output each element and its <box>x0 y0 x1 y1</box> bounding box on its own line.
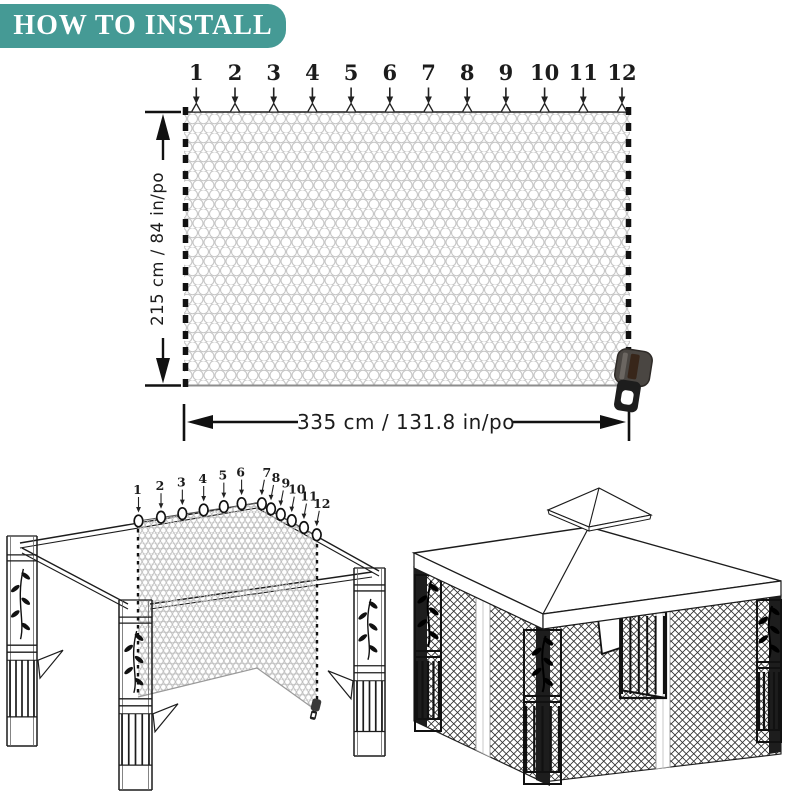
clip-number: 3 <box>266 60 281 85</box>
clip-numbers-row: 123456789101112 <box>189 60 637 112</box>
gazebo-corner-post <box>7 536 63 746</box>
net-ring-clip <box>287 515 296 527</box>
net-ring-clip <box>300 522 309 534</box>
arrow-right-icon <box>600 415 626 429</box>
ring-number: 8 <box>272 470 281 485</box>
assembled-gazebo-illustration <box>414 488 781 786</box>
instruction-sheet: HOW TO INSTALL 1234 <box>0 0 800 800</box>
net-clip-loop <box>579 104 588 112</box>
post-shelf-bracket <box>328 671 353 699</box>
net-clip-loop <box>463 104 472 112</box>
ring-number: 6 <box>236 465 245 480</box>
clip-number: 10 <box>530 60 559 85</box>
leaf-ornament <box>10 609 21 619</box>
net-ring-clip <box>157 511 166 523</box>
mesh-fabric <box>184 112 630 386</box>
net-clip-loop <box>192 104 201 112</box>
net-clip-loop <box>308 104 317 112</box>
ring-number: 12 <box>313 496 330 511</box>
net-clip-loop <box>269 104 278 112</box>
net-ring-clip <box>267 503 276 515</box>
hanging-net-panel <box>138 503 322 721</box>
clip-number: 4 <box>305 60 320 85</box>
arrow-down-icon <box>278 500 283 506</box>
ring-number: 3 <box>177 475 186 490</box>
net-clip-loop <box>231 104 240 112</box>
arrow-up-icon <box>156 114 170 140</box>
net-ring-clip <box>312 529 321 541</box>
width-dimension: 335 cm / 131.8 in/po <box>184 404 629 441</box>
ring-number: 5 <box>218 468 227 483</box>
gazebo-frame-install-illustration: 123456789101112 <box>7 465 385 790</box>
clip-number: 12 <box>607 60 636 85</box>
clip-number: 6 <box>382 60 397 85</box>
post-shelf-bracket <box>153 704 178 732</box>
net-clip-loop <box>540 104 549 112</box>
height-dimension-label: 215 cm / 84 in/po <box>148 172 167 326</box>
clip-number: 11 <box>569 60 598 85</box>
height-dimension: 215 cm / 84 in/po <box>145 112 181 386</box>
leaf-ornament <box>123 666 134 676</box>
gazebo-corner-post <box>328 568 385 756</box>
net-ring-clip <box>134 515 143 527</box>
arrow-down-icon <box>302 514 307 520</box>
ring-number: 2 <box>156 478 165 493</box>
arrow-down-icon <box>136 507 141 513</box>
net-ring-clip <box>237 498 246 510</box>
width-dimension-label: 335 cm / 131.8 in/po <box>297 410 515 434</box>
net-ring-clip <box>178 508 187 520</box>
net-clip-loop <box>385 104 394 112</box>
arrow-down-icon <box>180 500 185 506</box>
arrow-down-icon <box>156 358 170 384</box>
clip-number: 1 <box>189 60 204 85</box>
clip-number: 8 <box>460 60 475 85</box>
net-clip-loop <box>424 104 433 112</box>
instruction-graphic: 123456789101112 215 cm / 84 in/po 335 cm… <box>0 0 800 800</box>
ring-number: 4 <box>198 471 207 486</box>
net-panel-diagram: 123456789101112 <box>184 60 637 389</box>
arrow-down-icon <box>289 507 294 512</box>
arrow-down-icon <box>221 493 226 499</box>
arrow-down-icon <box>201 496 206 502</box>
frame-rail <box>22 548 128 609</box>
clip-number: 2 <box>228 60 243 85</box>
ring-number: 7 <box>263 465 272 480</box>
net-ring-clip <box>276 509 285 521</box>
post-shelf-bracket <box>38 650 63 678</box>
leaf-ornament <box>357 633 368 643</box>
net-clip-loop <box>501 104 510 112</box>
arrow-down-icon <box>269 495 274 501</box>
net-clip-loop <box>347 104 356 112</box>
net-ring-clip <box>199 504 208 516</box>
net-ring-clip <box>258 498 267 510</box>
leaf-ornament <box>368 622 379 632</box>
leaf-ornament <box>123 643 134 653</box>
net-clip-loop <box>618 104 627 112</box>
net-ring-clip <box>220 501 229 513</box>
arrow-down-icon <box>159 503 164 509</box>
leaf-ornament <box>357 611 368 621</box>
clip-number: 5 <box>344 60 359 85</box>
arrow-left-icon <box>187 415 213 429</box>
leaf-ornament <box>20 596 31 606</box>
ring-number: 1 <box>133 482 142 497</box>
clip-number: 7 <box>421 60 436 85</box>
arrow-down-icon <box>314 521 319 527</box>
leaf-ornament <box>10 584 21 594</box>
clip-number: 9 <box>499 60 514 85</box>
arrow-down-icon <box>239 490 244 496</box>
arrow-down-icon <box>259 490 264 496</box>
